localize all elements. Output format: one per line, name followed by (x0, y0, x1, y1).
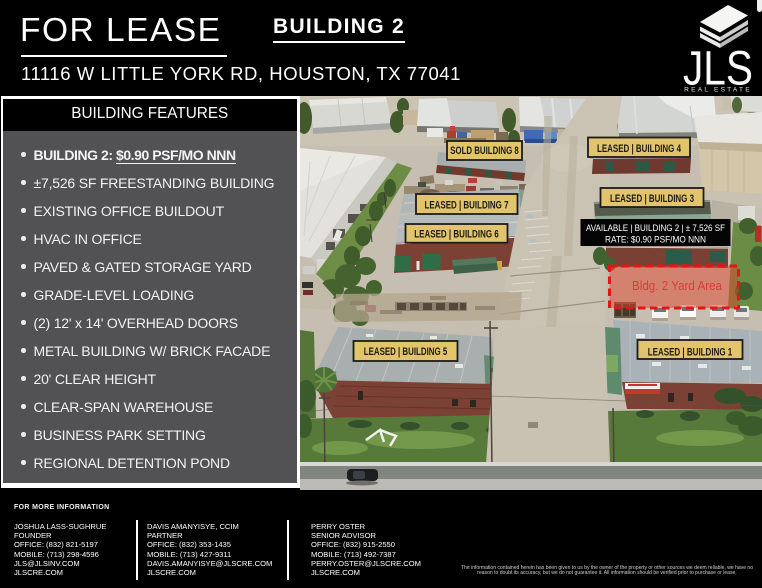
svg-text:SOLD BUILDING 8: SOLD BUILDING 8 (450, 145, 519, 157)
svg-text:LEASED | BUILDING 3: LEASED | BUILDING 3 (610, 193, 694, 205)
svg-text:Bldg. 2 Yard Area: Bldg. 2 Yard Area (632, 278, 723, 293)
svg-text:AVAILABLE | BUILDING 2 | ± 7,5: AVAILABLE | BUILDING 2 | ± 7,526 SF (586, 223, 725, 233)
svg-text:LEASED | BUILDING 1: LEASED | BUILDING 1 (647, 346, 732, 358)
svg-text:RATE: $0.90 PSF/MO NNN: RATE: $0.90 PSF/MO NNN (605, 235, 706, 245)
svg-text:LEASED | BUILDING 5: LEASED | BUILDING 5 (363, 346, 447, 358)
svg-text:LEASED | BUILDING 4: LEASED | BUILDING 4 (597, 143, 682, 155)
svg-text:LEASED | BUILDING 6: LEASED | BUILDING 6 (414, 229, 499, 241)
svg-text:REAL ESTATE: REAL ESTATE (684, 87, 752, 94)
svg-text:LEASED | BUILDING 7: LEASED | BUILDING 7 (424, 200, 508, 212)
